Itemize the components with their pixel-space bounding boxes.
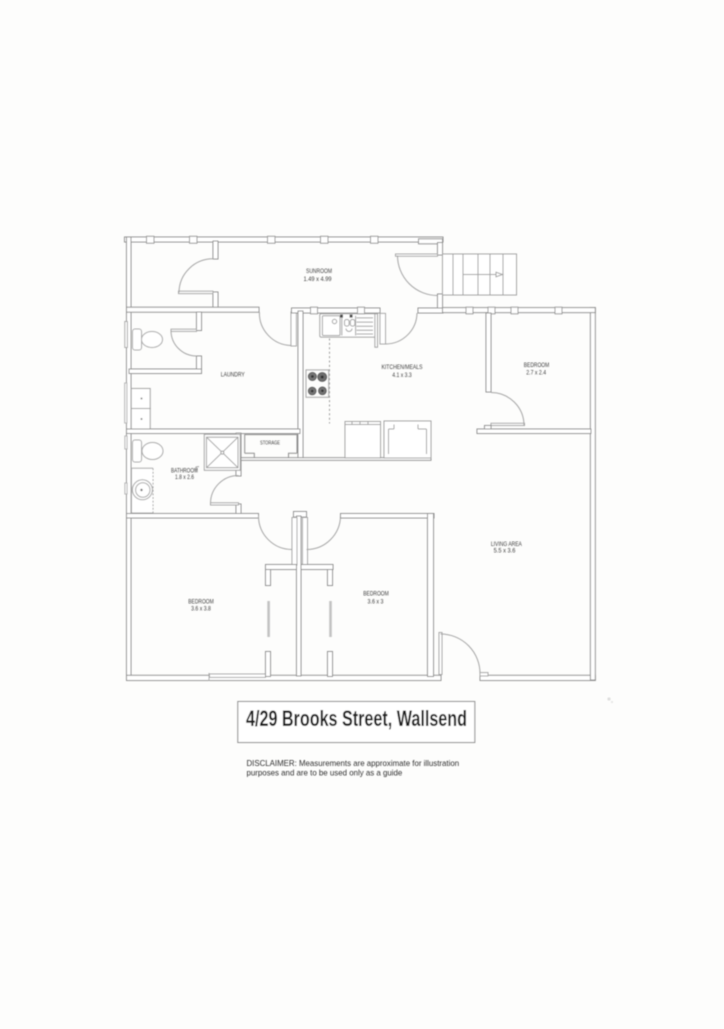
svg-text:BEDROOM: BEDROOM — [188, 599, 214, 605]
svg-text:LIVING AREA: LIVING AREA — [491, 542, 522, 548]
svg-text:1.8 x 2.6: 1.8 x 2.6 — [175, 475, 195, 481]
svg-text:3.6 x 3: 3.6 x 3 — [368, 599, 385, 605]
svg-text:BATHROOM: BATHROOM — [171, 468, 198, 474]
svg-text:5.5 x 3.6: 5.5 x 3.6 — [494, 549, 516, 555]
svg-text:1.49 x 4.99: 1.49 x 4.99 — [304, 277, 333, 283]
svg-text:BEDROOM: BEDROOM — [524, 363, 550, 369]
svg-text:KITCHEN/MEALS: KITCHEN/MEALS — [382, 365, 423, 371]
svg-text:3.6 x 3.8: 3.6 x 3.8 — [191, 606, 211, 612]
svg-text:4.1 x 3.3: 4.1 x 3.3 — [392, 373, 412, 379]
svg-text:SUNROOM: SUNROOM — [306, 269, 332, 275]
svg-text:BEDROOM: BEDROOM — [363, 592, 389, 598]
svg-text:4/29 Brooks Street, Wallsend: 4/29 Brooks Street, Wallsend — [246, 706, 467, 731]
svg-text:LAUNDRY: LAUNDRY — [221, 373, 245, 379]
svg-text:DISCLAIMER: Measurements are a: DISCLAIMER: Measurements are approximate… — [247, 758, 460, 768]
svg-text:STORAGE: STORAGE — [260, 441, 280, 447]
svg-text:2.7 x 2.4: 2.7 x 2.4 — [526, 371, 546, 377]
svg-text:purposes and are to be used on: purposes and are to be used only as a gu… — [247, 768, 403, 778]
